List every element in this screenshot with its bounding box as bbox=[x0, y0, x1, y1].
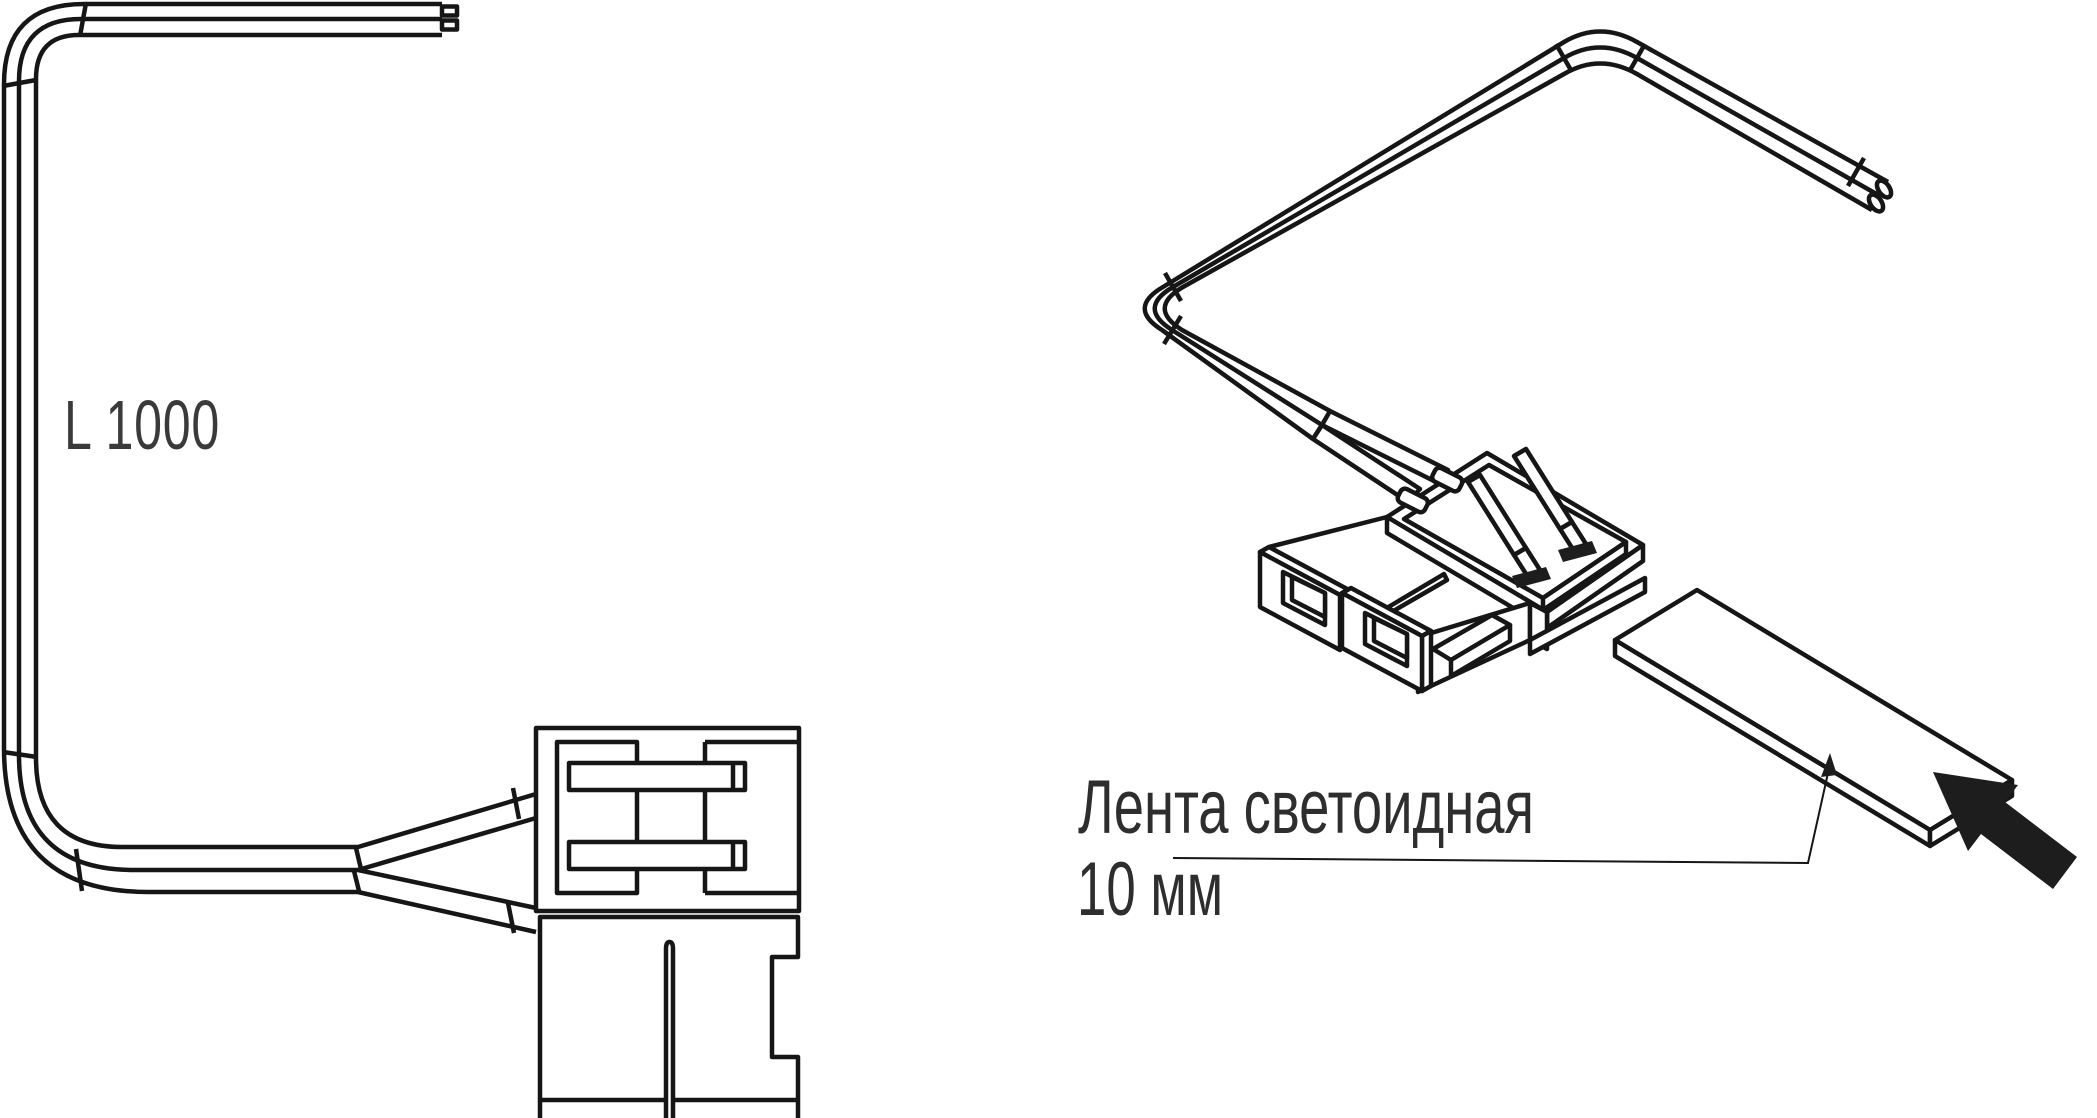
dimension-label: L 1000 bbox=[64, 386, 220, 464]
technical-drawing: L 1000 bbox=[0, 0, 2097, 1118]
wire-tip-lower bbox=[442, 21, 457, 30]
wire-split-lower-top bbox=[358, 870, 536, 908]
wire-tick bbox=[3, 752, 37, 757]
wire-3d bbox=[1145, 32, 1894, 440]
right-3d-view: Лента светоидная 10 мм bbox=[1077, 32, 2077, 933]
wire3d-tick bbox=[1629, 44, 1645, 72]
wire-tick bbox=[80, 3, 86, 36]
wire-2d bbox=[3, 3, 536, 933]
wire-tip-upper bbox=[442, 7, 457, 16]
diagram-canvas: L 1000 bbox=[0, 0, 2097, 1118]
wire3d-tick bbox=[1556, 44, 1572, 72]
wire-outer-line bbox=[4, 4, 536, 932]
wire3d-outer-line bbox=[1145, 32, 1888, 440]
wire-tick bbox=[513, 788, 519, 819]
housing-2d bbox=[536, 728, 799, 911]
wire-split-upper-bottom bbox=[358, 818, 536, 870]
strip-label-line1: Лента светоидная bbox=[1078, 765, 1534, 850]
body-2d-slot bbox=[666, 942, 673, 1118]
wire-tick bbox=[76, 849, 82, 891]
strip-label-line2: 10 мм bbox=[1077, 847, 1223, 932]
wire-tick bbox=[356, 848, 361, 869]
left-2d-view: L 1000 bbox=[3, 3, 799, 1118]
body-2d-outline bbox=[540, 917, 798, 1118]
connector-2d bbox=[536, 728, 799, 1118]
wire-tick bbox=[508, 903, 514, 933]
pin-upper bbox=[569, 763, 745, 790]
connector-3d bbox=[1260, 411, 1645, 692]
wire-tick bbox=[3, 80, 36, 86]
wire3d-seam-line bbox=[1155, 48, 1880, 426]
wire-tick bbox=[354, 871, 359, 891]
pin-lower bbox=[569, 842, 745, 869]
